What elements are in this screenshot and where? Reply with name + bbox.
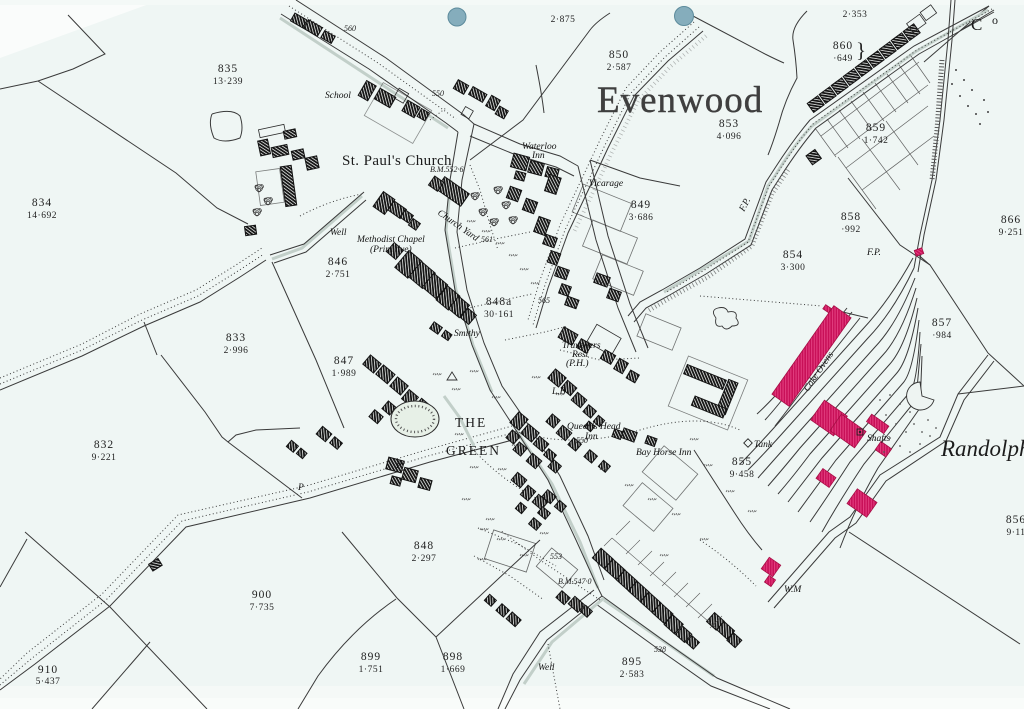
svg-text:14·692: 14·692 — [27, 211, 57, 221]
svg-text:2·587: 2·587 — [607, 63, 632, 73]
svg-text:900: 900 — [252, 589, 272, 601]
svg-text:565: 565 — [538, 296, 550, 305]
svg-text:853: 853 — [719, 118, 739, 130]
svg-text:·984: ·984 — [932, 331, 951, 341]
svg-text:30·161: 30·161 — [484, 310, 514, 320]
svg-text:2·751: 2·751 — [326, 270, 351, 280]
svg-text:866: 866 — [1001, 214, 1021, 226]
svg-text:1·669: 1·669 — [441, 665, 466, 675]
svg-text:895: 895 — [622, 656, 642, 668]
svg-text:9·251: 9·251 — [999, 228, 1024, 238]
svg-text:Queen's Head: Queen's Head — [567, 422, 621, 432]
svg-text:F.P.: F.P. — [866, 248, 881, 258]
svg-text:Well: Well — [330, 228, 347, 238]
svg-text:2·353: 2·353 — [843, 10, 868, 20]
svg-text:3·300: 3·300 — [781, 263, 806, 273]
svg-text:833: 833 — [226, 332, 246, 344]
svg-text:Well: Well — [538, 663, 555, 673]
svg-text:538: 538 — [654, 645, 666, 654]
svg-text:834: 834 — [32, 197, 52, 209]
svg-text:Shafts: Shafts — [867, 433, 891, 444]
svg-text:o: o — [992, 13, 998, 27]
svg-text:832: 832 — [94, 439, 114, 451]
svg-text:P: P — [297, 483, 304, 493]
svg-text:Bay Horse Inn: Bay Horse Inn — [636, 448, 692, 458]
svg-text:898: 898 — [443, 651, 463, 663]
svg-text:860: 860 — [833, 40, 853, 52]
svg-text:Inn: Inn — [531, 151, 545, 161]
svg-text:854: 854 — [783, 249, 803, 261]
svg-text:(Primitive): (Primitive) — [370, 244, 412, 255]
svg-text:846: 846 — [328, 256, 348, 268]
svg-text:B.M.547·0: B.M.547·0 — [558, 577, 592, 586]
svg-text:859: 859 — [866, 122, 886, 134]
svg-text:2·583: 2·583 — [620, 670, 645, 680]
svg-text:848a: 848a — [486, 296, 512, 308]
svg-text:550: 550 — [576, 436, 588, 445]
svg-text:9·458: 9·458 — [730, 470, 755, 480]
svg-text:9·11: 9·11 — [1006, 528, 1024, 538]
svg-text:(P.H.): (P.H.) — [566, 358, 589, 369]
svg-text:553: 553 — [550, 552, 562, 561]
svg-text:Randolph: Randolph — [940, 436, 1024, 461]
svg-text:847: 847 — [334, 355, 354, 367]
svg-text:910: 910 — [38, 664, 58, 676]
svg-text:850: 850 — [609, 49, 629, 61]
svg-text:Smithy: Smithy — [454, 329, 481, 339]
svg-text:858: 858 — [841, 211, 861, 223]
svg-text:B.M.552·6: B.M.552·6 — [430, 165, 464, 174]
svg-text:4·096: 4·096 — [717, 132, 742, 142]
svg-text:Vicarage: Vicarage — [589, 179, 623, 189]
svg-text:550: 550 — [432, 89, 444, 98]
svg-text:Methodist Chapel: Methodist Chapel — [356, 235, 425, 245]
svg-text:9·221: 9·221 — [92, 453, 117, 463]
svg-text:}: } — [856, 38, 866, 62]
svg-text:GREEN: GREEN — [446, 443, 501, 458]
svg-text:P: P — [395, 461, 402, 471]
svg-text:835: 835 — [218, 63, 238, 75]
svg-text:2·875: 2·875 — [551, 15, 576, 25]
svg-text:3·686: 3·686 — [629, 213, 654, 223]
svg-text:1·742: 1·742 — [864, 136, 889, 146]
svg-text:L.B: L.B — [551, 387, 566, 397]
svg-text:561: 561 — [481, 235, 493, 244]
svg-text:1·989: 1·989 — [332, 369, 357, 379]
svg-text:560: 560 — [344, 24, 356, 33]
svg-text:Tank: Tank — [754, 440, 773, 450]
svg-text:C: C — [971, 15, 982, 34]
svg-text:2·996: 2·996 — [224, 346, 249, 356]
svg-text:5·437: 5·437 — [36, 677, 61, 687]
svg-text:899: 899 — [361, 651, 381, 663]
svg-text:THE: THE — [455, 415, 487, 430]
svg-text:1·751: 1·751 — [359, 665, 384, 675]
svg-text:13·239: 13·239 — [213, 77, 243, 87]
svg-text:2·297: 2·297 — [412, 554, 437, 564]
svg-text:7·735: 7·735 — [250, 603, 275, 613]
svg-text:856: 856 — [1006, 514, 1024, 526]
svg-text:School: School — [325, 91, 351, 101]
svg-text:W.M: W.M — [784, 585, 802, 595]
svg-text:·992: ·992 — [841, 225, 860, 235]
svg-text:Evenwood: Evenwood — [597, 80, 763, 121]
svg-text:855: 855 — [732, 456, 752, 468]
svg-text:848: 848 — [414, 540, 434, 552]
svg-text:·649: ·649 — [833, 54, 852, 64]
svg-text:857: 857 — [932, 317, 952, 329]
svg-text:849: 849 — [631, 199, 651, 211]
